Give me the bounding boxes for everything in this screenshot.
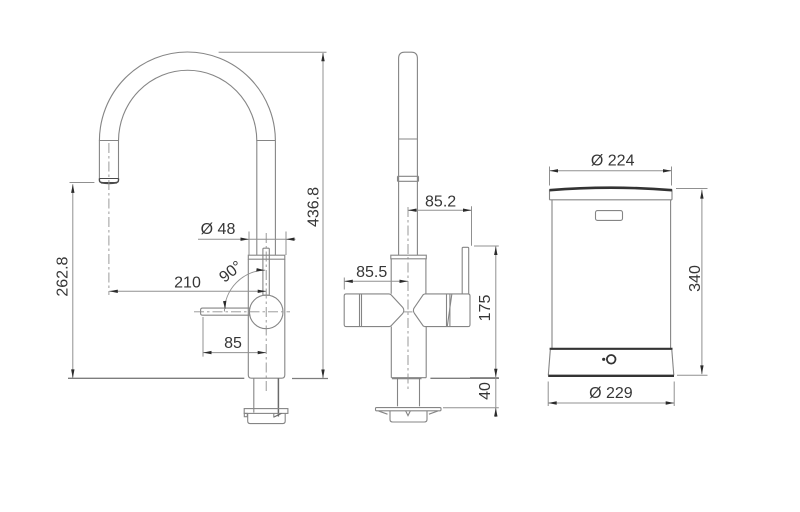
svg-text:Ø 229: Ø 229 — [589, 385, 633, 402]
svg-text:85.2: 85.2 — [425, 193, 456, 210]
svg-text:85: 85 — [224, 335, 242, 352]
svg-text:210: 210 — [174, 274, 201, 291]
svg-text:Ø 224: Ø 224 — [591, 153, 635, 170]
svg-text:436.8: 436.8 — [306, 187, 323, 227]
svg-text:85.5: 85.5 — [356, 264, 387, 281]
svg-text:262.8: 262.8 — [55, 256, 72, 296]
svg-text:Ø 48: Ø 48 — [201, 221, 236, 238]
svg-text:340: 340 — [687, 265, 704, 292]
svg-text:40: 40 — [477, 382, 494, 400]
svg-text:175: 175 — [477, 295, 494, 322]
svg-text:90°: 90° — [216, 258, 246, 286]
